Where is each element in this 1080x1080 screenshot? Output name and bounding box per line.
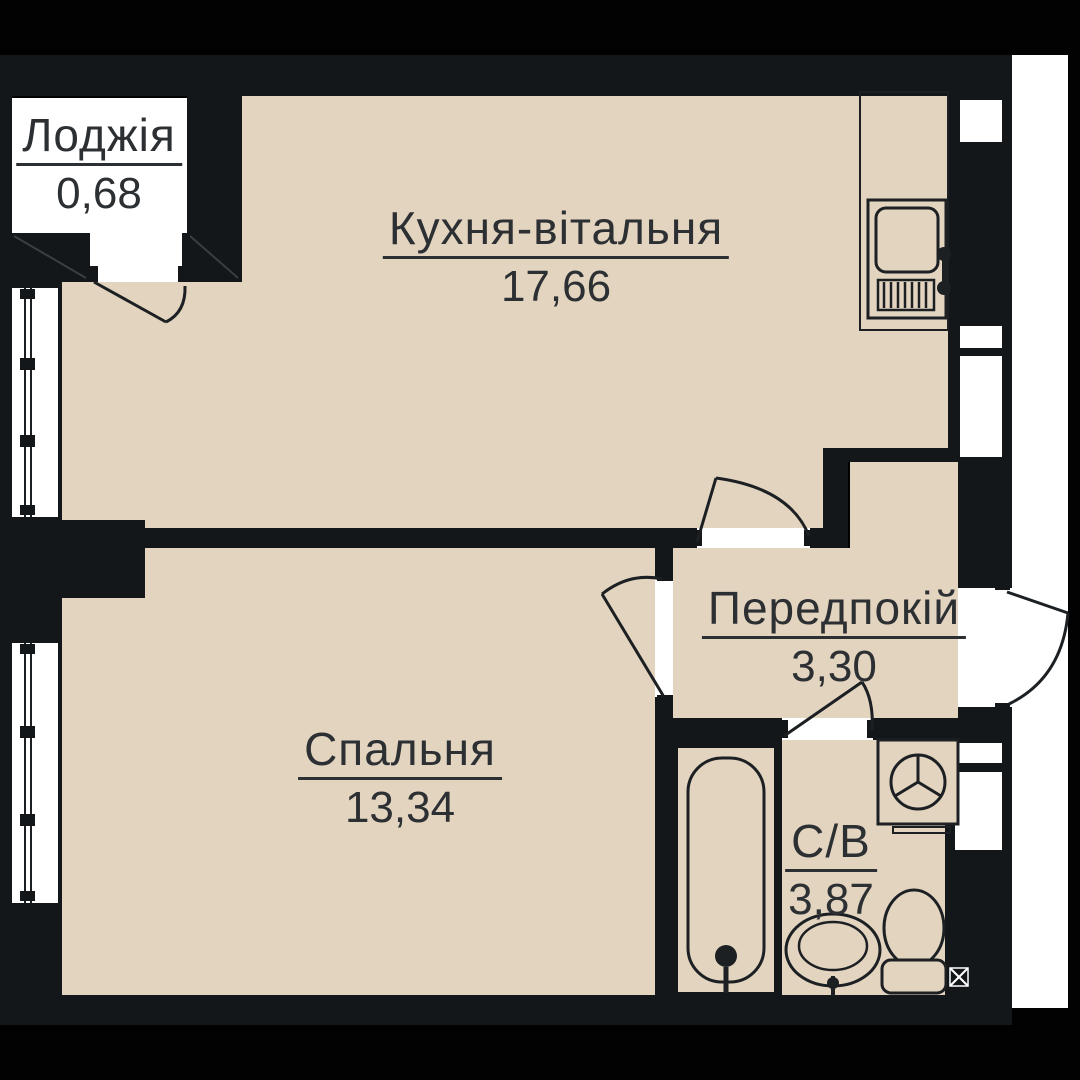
window-kitchen-left	[12, 288, 58, 517]
room-label-kitchen: Кухня-вітальня 17,66	[383, 205, 729, 309]
window-right-top	[960, 100, 1002, 142]
room-area-loggia: 0,68	[16, 172, 182, 216]
balcony-door-opening	[90, 233, 182, 282]
washing-machine-icon	[878, 740, 958, 833]
wall-bedroom-kitchen-block	[12, 520, 145, 598]
shaft-window-lower	[955, 772, 1002, 850]
wall-loggia-right	[187, 96, 242, 233]
toilet-icon	[882, 890, 946, 993]
shaft-window-upper	[955, 743, 1002, 763]
wall-top	[0, 55, 1012, 96]
room-label-hall: Передпокій 3,30	[702, 585, 966, 689]
room-name-bathroom: С/В	[785, 818, 877, 872]
wall-step-horizontal	[823, 448, 958, 462]
room-area-bedroom: 13,34	[298, 786, 502, 830]
entrance-door-opening	[958, 588, 1012, 707]
wall-step-vertical	[823, 448, 848, 548]
room-area-hall: 3,30	[702, 645, 966, 689]
floorplan-canvas: Лоджія 0,68 Кухня-вітальня 17,66 Спальня…	[0, 0, 1080, 1080]
room-label-bedroom: Спальня 13,34	[298, 726, 502, 830]
room-name-kitchen: Кухня-вітальня	[383, 205, 729, 259]
room-area-kitchen: 17,66	[383, 265, 729, 309]
room-label-loggia: Лоджія 0,68	[16, 112, 182, 216]
window-bedroom-left	[12, 643, 58, 903]
room-name-hall: Передпокій	[702, 585, 966, 639]
window-right-mid-lower	[960, 356, 1002, 457]
room-name-bedroom: Спальня	[298, 726, 502, 780]
bedroom-door-opening	[655, 577, 673, 697]
floor-drain-icon	[947, 965, 971, 989]
room-area-bathroom: 3,87	[785, 878, 877, 922]
window-right-mid-upper	[960, 326, 1002, 348]
wall-kitchen-bedroom	[145, 528, 697, 548]
kitchen-hall-opening	[697, 528, 810, 548]
room-label-bathroom: С/В 3,87	[785, 818, 877, 922]
bathtub-icon	[674, 744, 778, 996]
wall-bottom	[0, 995, 1012, 1025]
exterior-corridor	[1012, 55, 1068, 1008]
room-name-loggia: Лоджія	[16, 112, 182, 166]
wall-loggia-bottom-left	[0, 233, 90, 282]
